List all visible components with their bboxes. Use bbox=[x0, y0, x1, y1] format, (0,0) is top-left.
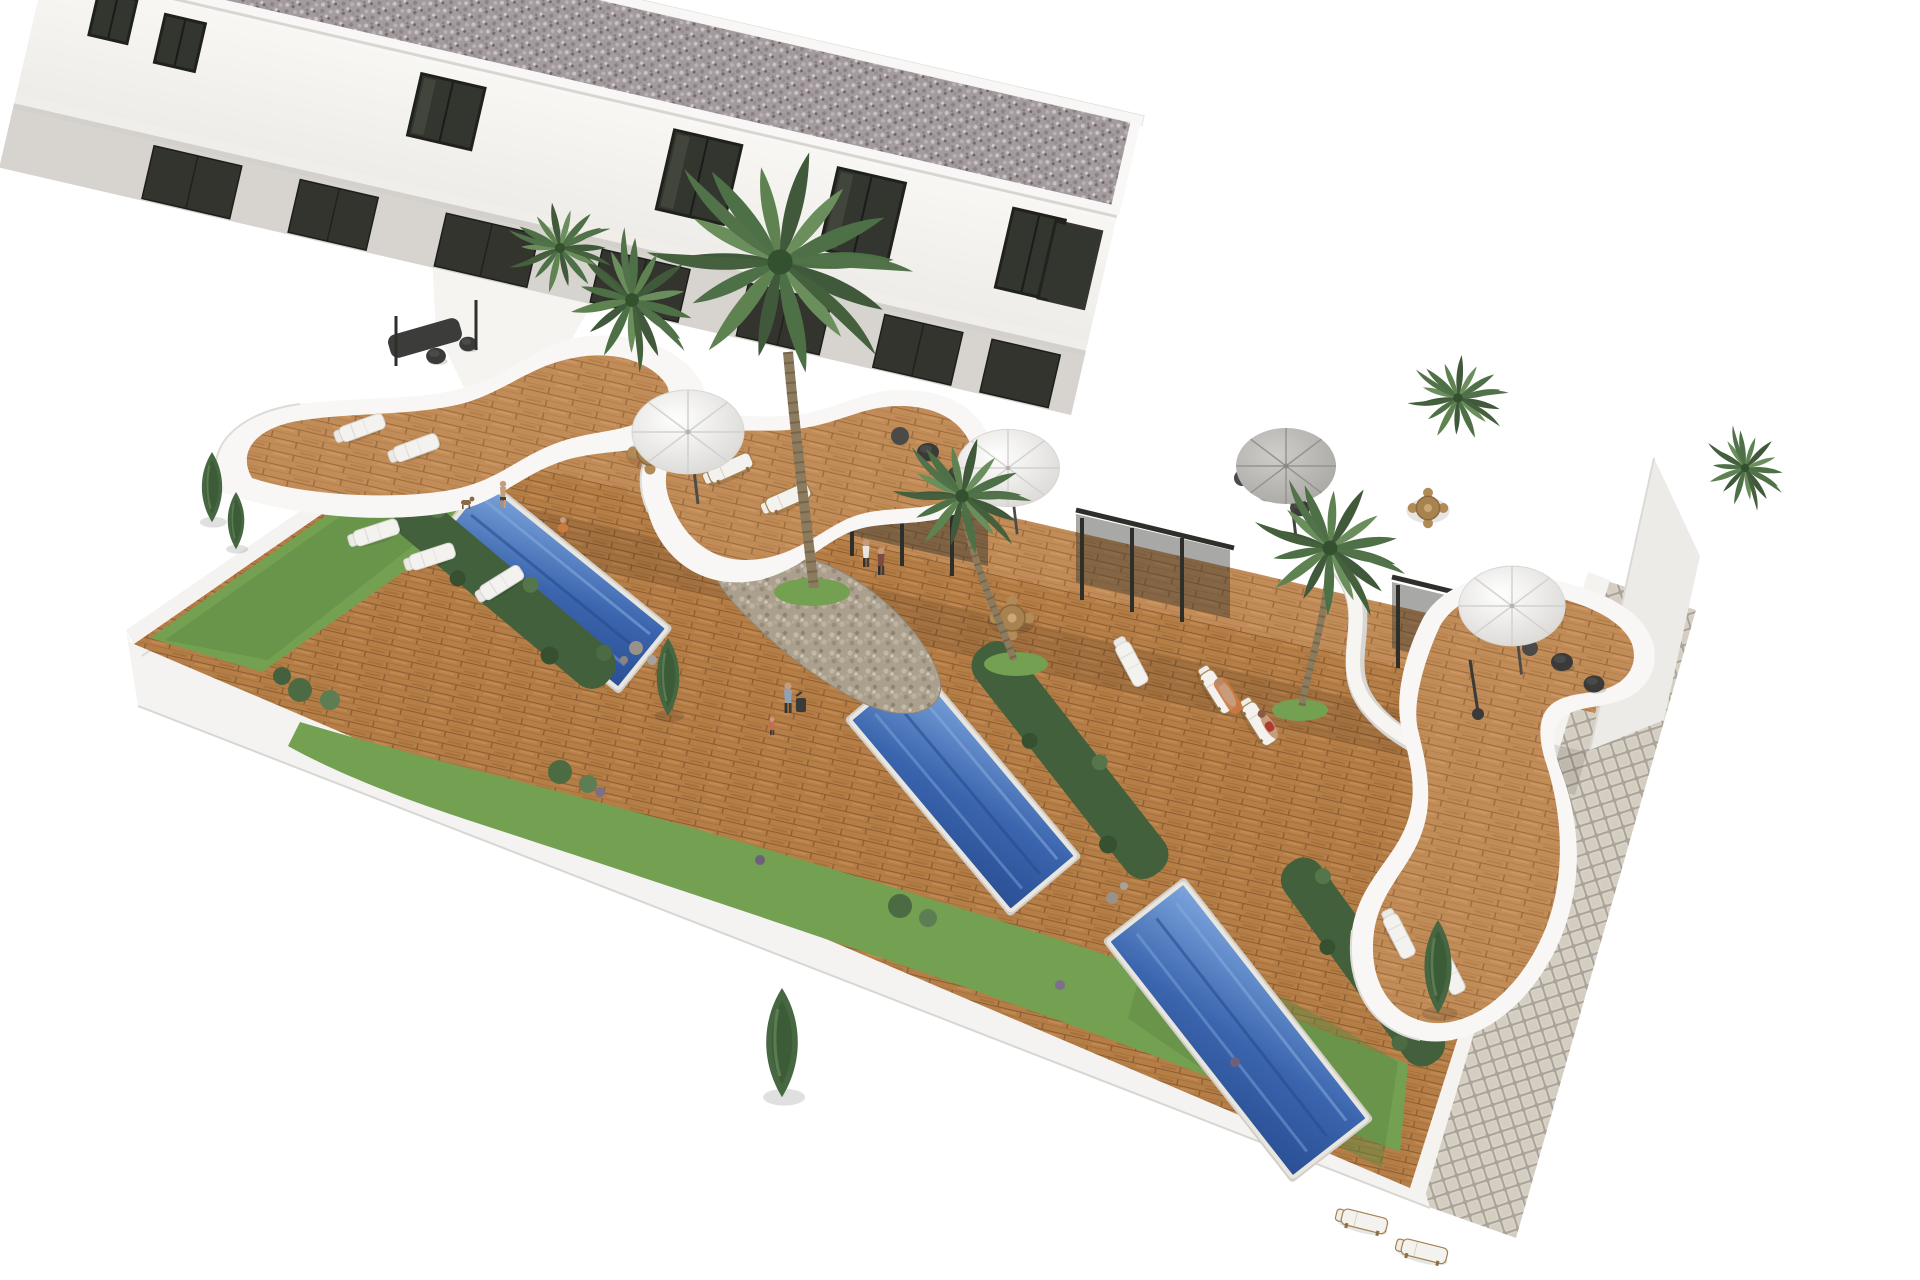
architectural-render: Aerial 3D architectural rendering of a m… bbox=[0, 0, 1920, 1280]
render-canvas: Aerial 3D architectural rendering of a m… bbox=[0, 0, 1920, 1280]
suitcase bbox=[796, 698, 806, 712]
